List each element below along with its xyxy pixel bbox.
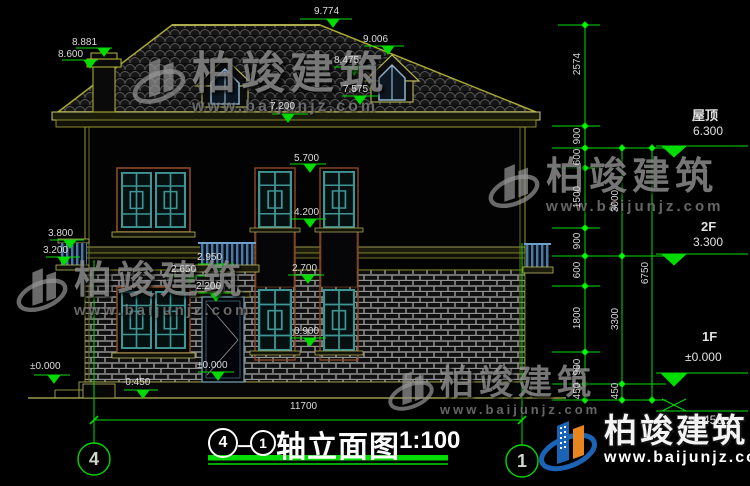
elevation-label: 8.881 — [72, 37, 97, 48]
storey-elevation: 3.300 — [693, 236, 723, 249]
elevation-label: 8.475 — [334, 55, 359, 66]
elevation-label: 2.650 — [171, 264, 196, 275]
elevation-label: ±0.000 — [197, 360, 228, 371]
storey-marker-1f — [656, 373, 748, 386]
level-marker-zero-left — [34, 375, 70, 383]
window-2f-left — [112, 168, 195, 237]
elevation-label: -0.450 — [122, 377, 150, 388]
storey-marker-2f — [656, 254, 748, 265]
dim-label: 6750 — [641, 256, 651, 290]
storey-label-1f: 1F — [702, 330, 717, 344]
window-1f-left — [112, 287, 195, 358]
elevation-label: 4.200 — [294, 207, 319, 218]
dim-label: 1800 — [573, 301, 583, 335]
elevation-label: 8.600 — [58, 49, 83, 60]
roof-group — [52, 25, 540, 127]
dim-label: 1500 — [573, 180, 583, 214]
storey-marker-base — [656, 399, 748, 411]
elevation-label: ±0.000 — [30, 361, 61, 372]
elevation-label: 2.700 — [292, 263, 317, 274]
drawing-title: 轴立面图 — [276, 422, 400, 466]
elevation-drawing — [0, 0, 750, 486]
elevation-label: 7.200 — [270, 101, 295, 112]
dim-label: 3300 — [611, 302, 621, 336]
title-axis-circle-4: 4 — [208, 428, 238, 458]
side-railing-right — [523, 244, 553, 273]
cad-canvas: 柏竣建筑 www.baijunjz.com 柏竣建筑 www.baijunjz.… — [0, 0, 750, 486]
storey-label-2f: 2F — [701, 220, 716, 234]
elevation-label: 5.700 — [294, 153, 319, 164]
axis-bubble-1: 1 — [510, 451, 534, 472]
axis-bubble-4: 4 — [82, 449, 106, 470]
drawing-scale: 1:100 — [399, 427, 460, 455]
dim-label: 450 — [573, 374, 583, 408]
storey-elevation: 6.300 — [693, 125, 723, 138]
elevation-label: 2.200 — [196, 281, 221, 292]
storey-marker-roof — [656, 146, 748, 157]
storey-label-roof: 屋顶 — [692, 109, 718, 123]
dim-label: 600 — [573, 140, 583, 174]
storey-elevation: -0.450 — [689, 414, 723, 427]
elevation-label: 3.800 — [48, 228, 73, 239]
elevation-label: 3.200 — [43, 245, 68, 256]
dim-label: 2574 — [573, 47, 583, 81]
elevation-label: 2.950 — [197, 252, 222, 263]
dim-label: 3000 — [611, 184, 621, 218]
dim-label: 450 — [611, 374, 621, 408]
elevation-label: 7.575 — [343, 84, 368, 95]
dim-label: 600 — [573, 253, 583, 287]
storey-elevation: ±0.000 — [685, 351, 722, 364]
elevation-label: 9.006 — [363, 34, 388, 45]
dim-label-total-width: 11700 — [290, 401, 317, 412]
elevation-label: 0.900 — [294, 326, 319, 337]
title-axis-circle-1: 1 — [250, 430, 276, 456]
elevation-label: 9.774 — [314, 6, 339, 17]
